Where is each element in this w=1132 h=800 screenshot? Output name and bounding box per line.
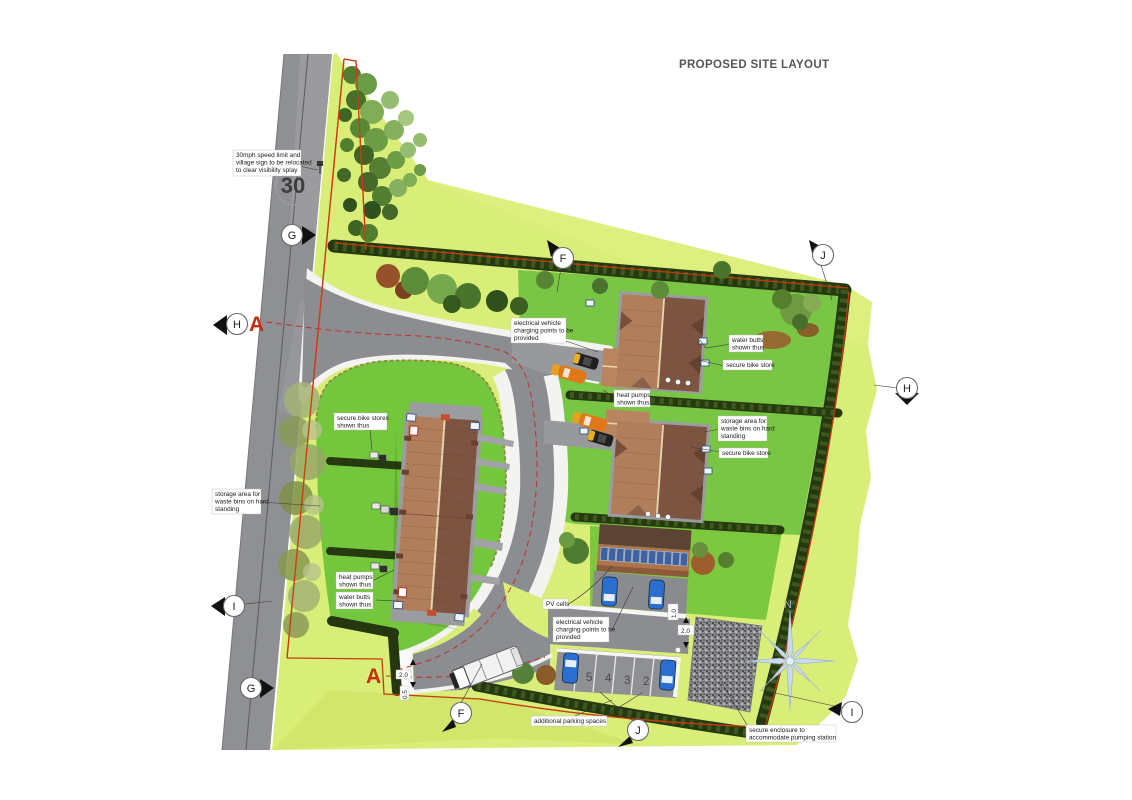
svg-text:charging points to be: charging points to be: [514, 328, 574, 335]
svg-text:J: J: [635, 725, 641, 737]
svg-text:I: I: [850, 707, 853, 719]
svg-text:A: A: [366, 665, 381, 688]
svg-text:G: G: [247, 683, 256, 695]
svg-text:J: J: [820, 250, 826, 262]
svg-text:shown thus: shown thus: [339, 582, 371, 589]
svg-text:storage area for: storage area for: [215, 491, 261, 498]
svg-text:village sign to be relocated: village sign to be relocated: [236, 160, 312, 167]
svg-text:30mph speed limit and: 30mph speed limit and: [236, 152, 301, 159]
svg-text:5: 5: [586, 672, 592, 684]
svg-text:2.0: 2.0: [399, 672, 408, 679]
svg-text:F: F: [560, 253, 567, 265]
svg-text:standing: standing: [215, 506, 240, 513]
svg-text:2: 2: [643, 676, 649, 688]
svg-text:2.0: 2.0: [681, 628, 690, 635]
svg-text:heat pumps: heat pumps: [617, 392, 650, 399]
svg-text:30: 30: [281, 173, 305, 198]
svg-text:water butts: water butts: [731, 337, 763, 344]
svg-text:waste bins on hard: waste bins on hard: [214, 499, 269, 506]
svg-text:waste bins on hard: waste bins on hard: [720, 426, 775, 433]
svg-text:3: 3: [624, 675, 630, 687]
svg-text:1.0: 1.0: [671, 609, 678, 618]
svg-text:storage area for: storage area for: [721, 418, 767, 425]
svg-text:shown thus: shown thus: [337, 423, 369, 430]
svg-text:0.5: 0.5: [402, 690, 409, 699]
svg-text:shown thus: shown thus: [339, 602, 371, 609]
svg-text:electrical vehicle: electrical vehicle: [556, 619, 603, 626]
svg-text:A: A: [249, 313, 264, 336]
svg-text:PV cells: PV cells: [546, 601, 569, 608]
svg-text:PROPOSED SITE LAYOUT: PROPOSED SITE LAYOUT: [679, 59, 829, 71]
svg-text:shown thus: shown thus: [732, 345, 764, 352]
svg-text:secure bike stores: secure bike stores: [337, 415, 389, 422]
svg-text:heat pumps: heat pumps: [339, 574, 372, 581]
svg-text:provided: provided: [556, 634, 581, 641]
svg-text:I: I: [232, 601, 235, 613]
svg-text:shown thus: shown thus: [617, 400, 649, 407]
svg-text:electrical vehicle: electrical vehicle: [514, 320, 561, 327]
svg-text:G: G: [288, 230, 297, 242]
svg-text:water butts: water butts: [338, 594, 370, 601]
svg-text:N: N: [784, 599, 792, 611]
svg-text:4: 4: [605, 673, 612, 685]
svg-text:additional parking spaces: additional parking spaces: [534, 718, 606, 725]
svg-text:to clear visibility splay: to clear visibility splay: [236, 167, 298, 174]
svg-text:provided: provided: [514, 335, 539, 342]
svg-text:H: H: [233, 319, 241, 331]
svg-text:F: F: [458, 708, 465, 720]
svg-text:secure enclosure to: secure enclosure to: [749, 727, 805, 734]
svg-text:secure bike store: secure bike store: [722, 450, 771, 457]
svg-text:H: H: [903, 383, 911, 395]
svg-text:secure bike store: secure bike store: [726, 362, 775, 369]
svg-text:charging points to be: charging points to be: [556, 627, 616, 634]
svg-text:accommodate pumping station: accommodate pumping station: [749, 735, 836, 742]
svg-text:standing: standing: [721, 433, 746, 440]
